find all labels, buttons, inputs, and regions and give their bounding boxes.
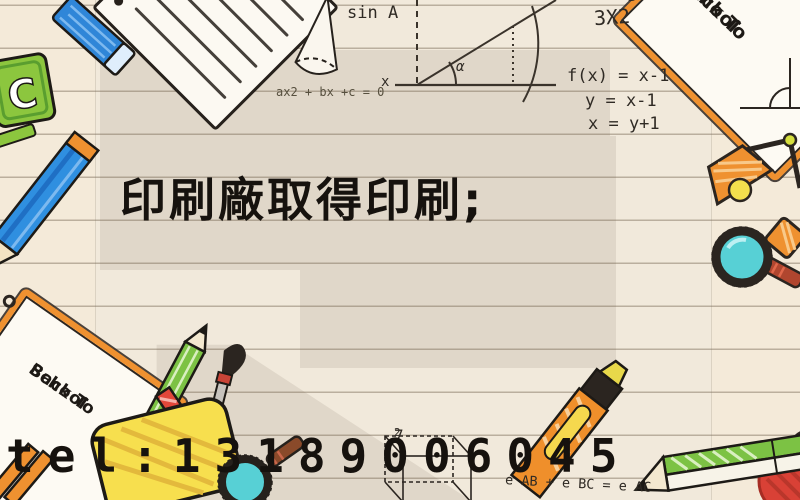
formula-sin: sin A [347, 3, 398, 23]
trig-diagram-icon [380, 0, 560, 110]
main-heading: 印刷廠取得印刷; [120, 164, 484, 230]
formula-x: x = y+1 [588, 114, 660, 134]
poster-canvas: C Back To [0, 0, 800, 500]
formula-3x2: 3X2 [593, 4, 631, 30]
page-shadow [300, 270, 616, 368]
blue-pencil-icon [0, 142, 90, 300]
green-pencil-icon [625, 415, 800, 500]
phone-number: tel:13189006045 [6, 429, 631, 483]
axis-x-label: x [381, 74, 389, 90]
letter-c-block-icon: C [0, 52, 58, 132]
formula-y: y = x-1 [585, 91, 657, 111]
formula-quadratic: ax2 + bx +c = 0 [276, 85, 384, 99]
right-angle-sketch-icon [738, 50, 800, 115]
formula-fx: f(x) = x-1 [567, 66, 669, 86]
angle-label: α [456, 59, 464, 75]
magnifier-icon [706, 218, 800, 296]
